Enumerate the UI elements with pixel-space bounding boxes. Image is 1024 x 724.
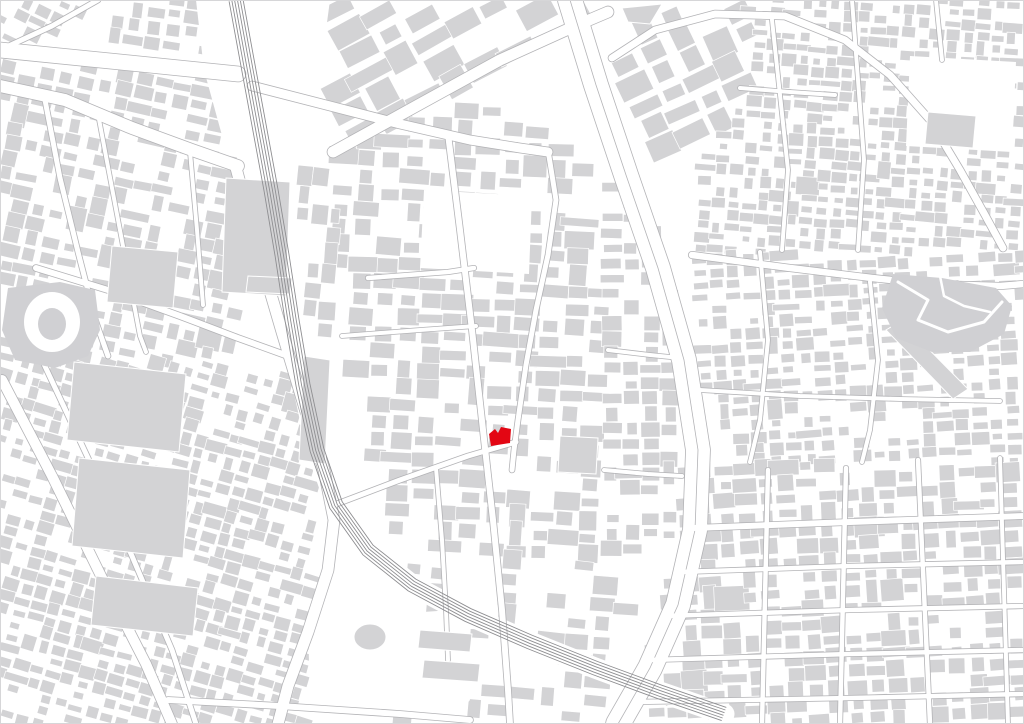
building-footprint [819, 147, 835, 160]
building-footprint [985, 627, 1004, 638]
building-footprint [358, 184, 375, 202]
building-footprint [709, 233, 725, 240]
building-footprint [925, 551, 937, 560]
building-footprint [787, 214, 796, 225]
building-footprint [823, 115, 833, 122]
building-footprint [592, 575, 619, 596]
building-footprint [719, 143, 727, 150]
building-footprint [908, 629, 920, 645]
building-footprint [421, 331, 439, 344]
building-footprint [692, 294, 708, 302]
building-footprint [760, 176, 772, 189]
building-footprint [296, 165, 313, 187]
building-footprint [419, 278, 446, 292]
building-footprint [985, 610, 1003, 624]
building-footprint [728, 201, 739, 208]
building-footprint [850, 151, 861, 161]
building-footprint [745, 327, 761, 340]
building-footprint [935, 192, 947, 199]
building-footprint [874, 15, 887, 24]
building-footprint [211, 302, 223, 314]
building-footprint [604, 362, 621, 373]
building-footprint [730, 328, 742, 339]
building-footprint [964, 32, 974, 43]
building-footprint [132, 2, 144, 19]
building-footprint [564, 231, 595, 251]
building-footprint [661, 424, 677, 435]
building-footprint [706, 244, 723, 253]
building-footprint [602, 393, 622, 403]
building-footprint [128, 18, 140, 32]
building-footprint [494, 299, 517, 311]
building-footprint [811, 67, 825, 79]
building-footprint [166, 24, 181, 38]
building-footprint [729, 187, 738, 198]
building-footprint [837, 127, 845, 134]
building-footprint [875, 212, 885, 221]
building-footprint [988, 378, 1001, 390]
building-footprint [32, 203, 45, 216]
building-footprint [889, 450, 901, 461]
building-footprint [845, 218, 858, 228]
building-footprint [607, 529, 618, 541]
building-footprint [896, 154, 907, 166]
building-footprint [875, 187, 892, 198]
building-footprint [946, 40, 957, 53]
building-footprint [859, 260, 876, 268]
building-footprint [946, 226, 962, 238]
building-footprint [996, 162, 1009, 169]
building-footprint [562, 406, 578, 423]
building-footprint [918, 237, 929, 247]
building-footprint [712, 492, 736, 509]
building-footprint [865, 579, 878, 604]
building-footprint [903, 4, 915, 15]
building-footprint [990, 419, 1002, 429]
building-footprint [901, 568, 921, 579]
building-footprint [846, 635, 862, 645]
building-footprint [803, 572, 816, 582]
building-footprint [975, 182, 996, 195]
building-footprint [894, 142, 907, 152]
building-footprint [461, 492, 480, 504]
building-footprint [824, 585, 837, 600]
building-footprint [624, 243, 637, 255]
building-footprint [733, 396, 749, 404]
building-footprint [745, 156, 760, 165]
building-footprint [870, 231, 887, 243]
building-footprint [388, 521, 403, 535]
building-footprint [891, 176, 904, 188]
building-footprint [939, 447, 956, 456]
building-footprint [830, 228, 841, 239]
building-footprint [401, 295, 416, 307]
building-footprint [1000, 339, 1018, 351]
building-footprint [709, 279, 723, 288]
building-footprint [1000, 352, 1017, 366]
building-footprint [829, 219, 845, 229]
building-footprint [739, 513, 756, 523]
building-footprint [989, 368, 1000, 375]
building-footprint [796, 538, 819, 554]
building-footprint [746, 110, 761, 118]
map-canvas [0, 0, 1024, 724]
building-footprint [779, 509, 797, 518]
building-footprint [693, 232, 710, 244]
building-footprint [880, 578, 905, 602]
building-footprint [825, 66, 840, 79]
building-footprint [535, 370, 560, 386]
building-footprint [781, 353, 795, 363]
building-footprint [114, 96, 128, 111]
building-footprint [796, 478, 817, 487]
building-footprint [642, 391, 658, 405]
site-plan-map [0, 0, 1024, 724]
building-footprint [901, 26, 916, 38]
building-footprint [814, 9, 827, 18]
building-footprint [946, 530, 957, 548]
building-footprint [593, 637, 610, 650]
building-footprint [1008, 706, 1024, 718]
building-footprint [1017, 82, 1024, 91]
building-footprint [622, 439, 639, 449]
building-footprint [701, 153, 716, 160]
building-footprint [46, 602, 60, 617]
building-footprint [397, 308, 420, 326]
building-footprint [804, 160, 816, 170]
building-footprint [996, 1, 1005, 9]
building-footprint [903, 550, 918, 561]
building-footprint [847, 161, 863, 172]
building-footprint [703, 671, 723, 685]
building-footprint [1007, 2, 1020, 10]
building-footprint [949, 9, 959, 16]
building-footprint [1007, 376, 1019, 390]
building-footprint [971, 431, 990, 445]
building-footprint [973, 422, 988, 430]
building-footprint [847, 311, 860, 321]
building-footprint [304, 282, 322, 299]
building-footprint [1008, 243, 1019, 251]
building-footprint [804, 440, 815, 451]
building-footprint [834, 197, 844, 203]
building-footprint [348, 256, 378, 273]
building-footprint [1003, 198, 1024, 207]
building-footprint [879, 490, 895, 500]
building-footprint [701, 625, 723, 639]
building-footprint [805, 665, 827, 681]
building-footprint [886, 25, 899, 36]
building-footprint [716, 187, 726, 197]
building-footprint [800, 227, 809, 237]
building-footprint [921, 192, 931, 199]
building-footprint [748, 167, 757, 176]
building-footprint [377, 293, 393, 306]
building-footprint [693, 282, 708, 290]
building-footprint [371, 364, 388, 376]
building-footprint [904, 14, 913, 27]
building-footprint [869, 72, 880, 79]
building-footprint [987, 344, 1000, 352]
building-footprint [851, 712, 864, 724]
building-footprint [698, 220, 710, 228]
building-footprint [781, 378, 801, 387]
building-footprint [732, 478, 757, 494]
building-footprint [972, 407, 988, 417]
building-footprint [816, 228, 826, 240]
building-footprint [929, 257, 943, 267]
building-footprint [820, 80, 841, 87]
building-footprint [375, 236, 401, 256]
building-footprint [435, 436, 462, 447]
building-footprint [504, 121, 524, 137]
building-footprint [726, 279, 740, 288]
building-footprint [773, 303, 800, 311]
building-footprint [623, 361, 639, 375]
building-footprint [746, 341, 763, 350]
building-footprint [934, 225, 943, 237]
building-footprint [765, 378, 783, 389]
building-footprint [903, 384, 915, 394]
building-footprint [870, 711, 885, 723]
building-footprint [946, 29, 960, 41]
building-footprint [977, 32, 990, 41]
building-footprint [353, 201, 380, 218]
building-footprint [716, 163, 727, 175]
building-footprint [967, 578, 978, 592]
building-footprint [1010, 184, 1022, 195]
building-footprint [966, 158, 981, 167]
building-footprint [4, 134, 23, 152]
building-footprint [644, 438, 659, 450]
building-footprint [480, 171, 496, 190]
building-footprint [321, 263, 337, 284]
building-footprint [317, 323, 332, 338]
building-footprint [788, 668, 805, 682]
campus-building-b [72, 458, 190, 558]
building-footprint [430, 172, 446, 187]
building-footprint [454, 102, 479, 119]
building-footprint [767, 399, 784, 420]
building-footprint [730, 355, 745, 368]
building-footprint [988, 579, 1001, 590]
building-footprint [910, 677, 925, 693]
building-footprint [640, 365, 661, 373]
building-footprint [835, 374, 846, 385]
building-footprint [711, 344, 729, 354]
building-footprint [398, 257, 423, 271]
building-footprint [698, 175, 712, 185]
building-footprint [359, 169, 373, 184]
building-footprint [919, 17, 930, 29]
building-footprint [721, 543, 736, 558]
building-footprint [537, 407, 553, 419]
building-footprint [782, 622, 802, 632]
building-footprint [800, 55, 808, 64]
building-footprint [850, 187, 858, 195]
building-footprint [919, 39, 928, 49]
building-footprint [330, 208, 340, 223]
building-footprint [809, 684, 823, 697]
building-footprint [732, 118, 745, 128]
building-footprint [417, 314, 446, 324]
building-footprint [874, 247, 883, 253]
building-footprint [572, 163, 594, 177]
building-footprint [641, 377, 659, 389]
building-footprint [685, 625, 697, 641]
building-footprint [946, 254, 964, 263]
building-footprint [980, 529, 1003, 546]
building-footprint [934, 202, 946, 213]
building-footprint [744, 592, 757, 603]
gymnasium [354, 624, 386, 650]
building-footprint [990, 444, 1006, 453]
building-footprint [835, 138, 849, 148]
building-footprint [600, 258, 621, 269]
building-footprint [311, 204, 329, 226]
building-footprint [538, 388, 557, 403]
building-footprint [813, 58, 821, 65]
building-footprint [839, 91, 853, 102]
building-footprint [796, 337, 815, 351]
building-footprint [733, 369, 742, 376]
building-footprint [157, 171, 170, 183]
building-footprint [795, 176, 820, 196]
building-footprint [791, 274, 809, 288]
building-footprint [860, 27, 868, 33]
building-footprint [838, 244, 857, 251]
building-footprint [21, 583, 34, 596]
building-footprint [613, 602, 639, 616]
building-footprint [865, 189, 874, 195]
building-footprint [140, 630, 150, 640]
building-footprint [440, 368, 466, 379]
building-footprint [949, 627, 961, 639]
building-footprint [915, 211, 938, 223]
building-footprint [830, 185, 845, 193]
building-footprint [574, 560, 594, 571]
building-footprint [372, 415, 387, 429]
building-footprint [694, 270, 707, 277]
building-footprint [899, 471, 913, 482]
building-footprint [263, 430, 276, 442]
building-footprint [893, 709, 906, 724]
building-footprint [936, 180, 948, 191]
building-footprint [876, 222, 887, 230]
pond-island [38, 308, 66, 340]
building-footprint [444, 403, 459, 414]
building-footprint [332, 185, 352, 196]
building-footprint [404, 242, 420, 253]
building-footprint [1007, 432, 1023, 440]
building-footprint [458, 469, 486, 489]
building-footprint [358, 150, 376, 167]
building-footprint [153, 646, 166, 659]
building-footprint [831, 161, 847, 171]
building-footprint [732, 408, 748, 417]
building-footprint [739, 226, 752, 233]
building-footprint [752, 52, 763, 61]
building-footprint [850, 401, 868, 412]
building-footprint [847, 680, 868, 696]
building-footprint [847, 259, 858, 271]
building-footprint [799, 241, 811, 250]
building-footprint [720, 404, 729, 421]
building-footprint [887, 349, 896, 356]
building-footprint [86, 136, 101, 151]
building-footprint [407, 156, 424, 167]
building-footprint [742, 236, 750, 242]
building-footprint [98, 79, 111, 93]
building-footprint [716, 131, 732, 139]
building-footprint [751, 61, 764, 72]
building-footprint [835, 149, 850, 161]
building-footprint [623, 544, 642, 554]
building-footprint [821, 440, 835, 452]
building-footprint [886, 659, 906, 677]
building-footprint [847, 299, 862, 311]
building-footprint [644, 529, 658, 537]
building-footprint [874, 470, 896, 488]
building-footprint [946, 237, 962, 248]
building-footprint [861, 487, 874, 503]
building-footprint [312, 167, 330, 187]
building-footprint [745, 142, 758, 154]
building-footprint [860, 2, 873, 11]
building-footprint [710, 268, 724, 278]
building-footprint [712, 222, 720, 233]
building-footprint [697, 360, 711, 368]
building-footprint [818, 196, 829, 203]
building-footprint [830, 340, 846, 348]
building-footprint [906, 227, 916, 233]
building-footprint [1014, 138, 1023, 147]
building-footprint [502, 549, 522, 570]
building-footprint [742, 203, 757, 210]
building-footprint [816, 207, 827, 215]
building-footprint [1008, 220, 1021, 228]
building-footprint [371, 431, 385, 446]
building-footprint [721, 482, 732, 490]
building-footprint [600, 228, 622, 239]
building-footprint [624, 300, 639, 315]
building-footprint [2, 225, 21, 244]
building-footprint [877, 161, 892, 180]
building-footprint [909, 187, 918, 198]
building-footprint [794, 99, 808, 108]
building-footprint [307, 263, 319, 278]
building-footprint [936, 420, 954, 432]
building-footprint [487, 386, 512, 400]
building-footprint [798, 216, 812, 225]
building-footprint [456, 507, 481, 521]
building-footprint [896, 105, 907, 117]
building-footprint [892, 5, 900, 14]
building-footprint [924, 178, 934, 187]
building-footprint [736, 444, 748, 456]
building-footprint [25, 139, 38, 152]
building-footprint [848, 337, 863, 346]
building-footprint [866, 632, 883, 642]
building-footprint [606, 407, 618, 422]
building-footprint [565, 304, 589, 317]
building-footprint [782, 77, 790, 89]
building-footprint [773, 204, 782, 212]
building-footprint [510, 686, 535, 700]
building-footprint [896, 486, 918, 498]
building-footprint [539, 423, 554, 441]
building-footprint [801, 194, 817, 201]
